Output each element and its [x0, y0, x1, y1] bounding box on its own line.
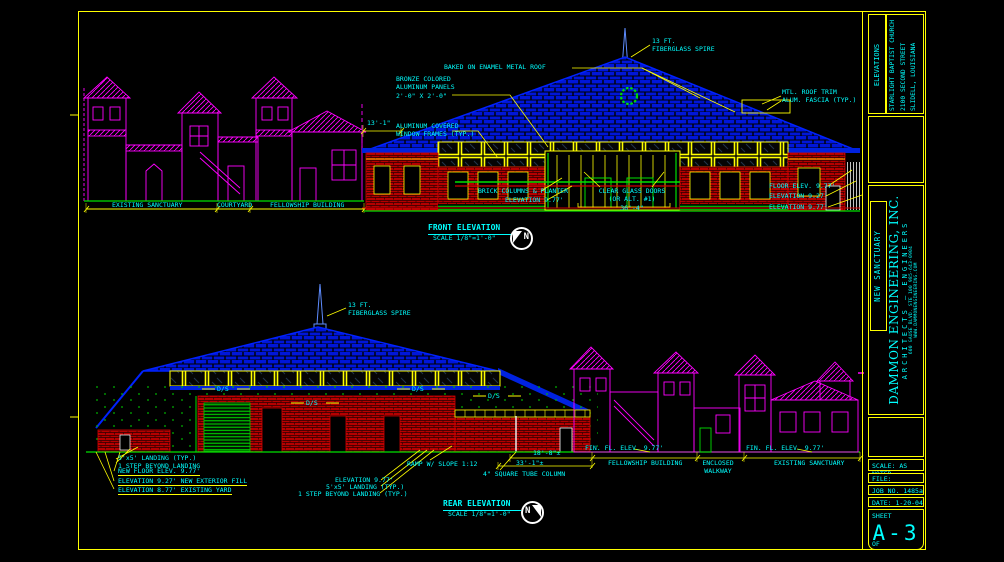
rear-tube-column-label: 4" SQUARE TUBE COLUMN [483, 470, 565, 478]
titleblock-scale: SCALE: AS NOTED [868, 459, 924, 471]
rear-fin-floor-right-label: FIN. FL. ELEV. 9.77' [746, 444, 824, 452]
rear-enclosed-walkway-label: ENCLOSED WALKWAY [700, 459, 736, 476]
rear-dim-18-8: 18'-8"± [533, 449, 560, 457]
rear-downspout-2: D/S [306, 399, 318, 407]
titleblock-firm-box: NEW SANCTUARY DAMMON ENGINEERING, INC. A… [868, 185, 924, 415]
rear-existing-yard-label: ELEVATION 8.77' EXISTING YARD [118, 486, 232, 495]
sheet-label: SHEET [869, 510, 923, 520]
north-arrow-pointer [513, 231, 522, 243]
titleblock-file: FILE: [868, 473, 924, 483]
titleblock-discipline: ELEVATIONS [869, 15, 887, 115]
north-letter: N [524, 232, 529, 242]
firm-website: WWW.DAMMONENGINEERING.COM [914, 186, 919, 414]
firm-type: ARCHITECTS — ENGINEERS [901, 186, 909, 414]
rear-downspout-1: D/S [217, 385, 229, 393]
north-arrow-icon: N [510, 227, 533, 250]
rear-fin-floor-left-label: FIN. FL. ELEV. 9.77' [585, 444, 663, 452]
front-bronze-panels-label: BRONZE COLORED ALUMINUM PANELS 2'-0" X 2… [396, 75, 455, 100]
titleblock-discipline-box: ELEVATIONS [868, 14, 886, 114]
front-roof-trim-label: MTL. ROOF TRIM ALUM. FASCIA (TYP.) [782, 88, 856, 105]
titleblock-revision-box [868, 116, 924, 183]
rear-existing-sanctuary-label: EXISTING SANCTUARY [774, 459, 844, 467]
titleblock-project-box: STARLIGHT BAPTIST CHURCH 2100 SECOND STR… [886, 14, 924, 114]
front-floor-elev-label: FLOOR ELEV. 9.77' [769, 182, 836, 190]
titleblock-date: DATE: 1-20-04 [868, 497, 924, 507]
front-baked-roof-label: BAKED ON ENAMEL METAL ROOF [444, 63, 546, 71]
front-eave-dimension: 13'-1" [367, 119, 390, 127]
front-elevation-927-label: ELEVATION 9.27' [769, 192, 828, 200]
titleblock-project-name: NEW SANCTUARY [871, 202, 886, 330]
titleblock-notes-box [868, 417, 924, 457]
rear-dim-33-1: 33'-1"± [516, 459, 543, 467]
front-window-frames-label: ALUMINUM COVERED WINDOW FRAMES (TYP.) [396, 122, 474, 139]
rear-ramp-label: RAMP W/ SLOPE 1:12 [407, 460, 477, 468]
titleblock-project: STARLIGHT BAPTIST CHURCH 2100 SECOND STR… [887, 13, 924, 113]
titleblock-job: JOB NO. 1485a [868, 485, 924, 495]
firm-name: DAMMON ENGINEERING, INC. [887, 186, 901, 414]
front-brick-columns-label: BRICK COLUMNS & PLANTER [478, 187, 568, 195]
front-existing-sanctuary-label: EXISTING SANCTUARY [112, 201, 182, 209]
titleblock-project-name-box: NEW SANCTUARY [870, 201, 887, 331]
front-elevation-977b-label: ELEVATION 9.77' [769, 203, 828, 211]
north-arrow-pointer [532, 505, 541, 517]
front-fellowship-label: FELLOWSHIP BUILDING [270, 201, 344, 209]
rear-downspout-3: D/S [412, 385, 424, 393]
rear-spire-label: 13 FT. FIBERGLASS SPIRE [348, 301, 411, 318]
titleblock-divider [862, 11, 863, 550]
rear-step-beyond-label: 1 STEP BEYOND LANDING (TYP.) [298, 490, 408, 498]
front-spire-label: 13 FT. FIBERGLASS SPIRE [652, 37, 715, 54]
north-letter: N [525, 506, 530, 516]
front-elevation-977-label: ELEVATION 9.77' [505, 196, 564, 204]
titleblock-sheet-box: SHEET A-3 OF [868, 509, 924, 550]
rear-fellowship-label: FELLOWSHIP BUILDING [608, 459, 682, 467]
front-glass-doors-label: CLEAR GLASS DOORS (OR ALT. #1) 36'-4" [592, 187, 672, 212]
rear-new-floor-label: NEW FLOOR ELEV. 9.77' [118, 467, 200, 476]
sheet-of-label: OF [869, 538, 880, 548]
front-elevation-scale: SCALE 1/8"=1'-0" [433, 234, 496, 242]
north-arrow-icon-rear: N [521, 501, 544, 524]
rear-downspout-4: D/S [488, 392, 500, 400]
cad-sheet: 13 FT. FIBERGLASS SPIRE BAKED ON ENAMEL … [0, 0, 1004, 562]
front-courtyard-label: COURTYARD [217, 201, 252, 209]
rear-elevation-scale: SCALE 1/8"=1'-0" [448, 510, 511, 518]
